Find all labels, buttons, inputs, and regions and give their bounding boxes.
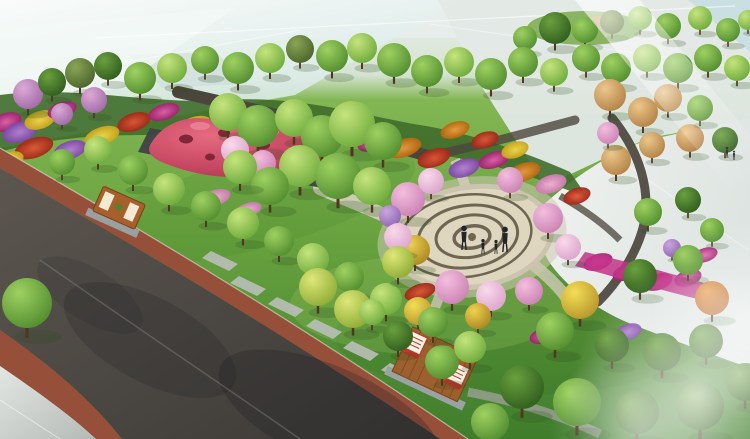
person-head: [494, 240, 497, 243]
tree-canopy-purplePink: [51, 103, 73, 125]
tree-shadow: [263, 74, 292, 82]
tree-canopy-g3: [94, 52, 122, 80]
tree-canopy-g2: [359, 299, 385, 325]
tree-shadow: [56, 126, 77, 132]
tree-canopy-g2: [454, 331, 486, 363]
tree-canopy-g1: [191, 46, 219, 74]
tree-canopy-tan: [639, 132, 665, 158]
tree-shadow: [609, 176, 638, 184]
tree-canopy-lime: [382, 246, 414, 278]
tree-shadow: [547, 45, 577, 54]
tree-canopy-g3: [539, 12, 571, 44]
tree-canopy-g1: [508, 47, 538, 77]
tree-shadow: [722, 43, 745, 50]
tree-shadow: [603, 145, 624, 151]
tree-canopy-pink: [435, 270, 469, 304]
tree-canopy-g3: [383, 321, 413, 351]
tree-canopy-g1: [536, 312, 574, 350]
tree-canopy-g1: [694, 44, 722, 72]
person-body: [502, 233, 507, 244]
tree-shadow: [426, 338, 455, 346]
tree-shadow: [232, 185, 264, 195]
person-leg: [465, 242, 466, 250]
tree-shadow: [602, 112, 632, 121]
tree-canopy-olive: [65, 58, 95, 88]
tree-canopy-g3: [675, 187, 701, 213]
person-body: [481, 243, 484, 249]
tree-shadow: [641, 227, 668, 235]
tree-canopy-g2: [444, 47, 474, 77]
tree-canopy-g1: [316, 40, 348, 72]
tree-canopy-g1: [634, 198, 662, 226]
tree-canopy-purplePink: [81, 87, 107, 113]
tree-canopy-pinkLight: [418, 168, 444, 194]
tree-shadow: [646, 159, 671, 166]
tree-shadow: [562, 261, 587, 268]
person-body: [495, 244, 498, 250]
tree-shadow: [579, 73, 606, 81]
tree-shadow: [511, 411, 553, 423]
tree-canopy-g2: [540, 58, 568, 86]
tree-shadow: [483, 91, 513, 100]
tree-canopy-pinkLight: [555, 234, 581, 260]
tree-shadow: [293, 64, 320, 72]
tree-shadow: [419, 88, 449, 97]
tree-shadow: [547, 87, 574, 95]
tree-canopy-tan: [628, 97, 658, 127]
tree-shadow: [682, 214, 707, 221]
tree-canopy-g3: [38, 68, 66, 96]
person-head: [481, 239, 484, 242]
tree-canopy-pink: [515, 277, 543, 305]
park-rendering-stage: Aerial rendering of a pocket park with c…: [0, 0, 750, 439]
tree-shadow: [199, 222, 228, 230]
tree-shadow: [694, 31, 717, 38]
tree-canopy-g2: [724, 55, 750, 81]
tree-canopy-g2: [255, 43, 285, 73]
person-leg: [462, 242, 463, 250]
tree-shadow: [101, 81, 128, 89]
tree-shadow: [701, 73, 728, 81]
tree-shadow: [503, 194, 528, 201]
person-head: [461, 226, 467, 232]
tree-canopy-g1: [251, 167, 289, 205]
tree-canopy-g1: [2, 278, 52, 328]
tree-canopy-g1: [49, 149, 75, 175]
tree-canopy-g2: [227, 207, 259, 239]
play-structure-highlight: [190, 122, 210, 130]
tree-canopy-g1: [118, 155, 148, 185]
person-leg: [503, 244, 504, 252]
tree-canopy-g1: [264, 226, 294, 256]
tree-canopy-g2: [347, 33, 377, 63]
play-structure-hole: [179, 135, 193, 144]
tree-shadow: [522, 306, 549, 314]
tree-canopy-g2: [688, 6, 712, 30]
tree-canopy-g3: [500, 365, 544, 409]
tree-canopy-g1: [377, 43, 411, 77]
tree-shadow: [425, 195, 450, 202]
tree-canopy-lime: [299, 268, 337, 306]
tree-canopy-g1: [572, 44, 600, 72]
tree-canopy-g2: [84, 136, 112, 164]
tree-canopy-g1: [364, 122, 402, 160]
tree-shadow: [462, 364, 492, 373]
tree-canopy-g1: [222, 52, 254, 84]
tree-canopy-pink: [597, 122, 619, 144]
tree-shadow: [165, 84, 194, 92]
person-leg: [506, 244, 507, 252]
tree-shadow: [21, 110, 50, 118]
tree-shadow: [516, 78, 545, 86]
tree-canopy-g2: [157, 53, 187, 83]
tree-canopy-g2: [153, 173, 185, 205]
tree-canopy-pink: [497, 167, 523, 193]
tree-shadow: [126, 186, 155, 194]
tree-canopy-g1: [334, 262, 364, 292]
tree-shadow: [161, 206, 191, 215]
tree-canopy-yellow2: [465, 303, 491, 329]
tree-canopy-g2: [353, 167, 391, 205]
person-head: [502, 227, 508, 233]
tree-shadow: [15, 330, 63, 344]
tree-canopy-g2: [223, 150, 257, 184]
tree-shadow: [132, 95, 162, 104]
tree-shadow: [56, 176, 81, 183]
park-rendering: [0, 0, 750, 439]
tree-shadow: [230, 85, 260, 94]
tree-shadow: [324, 73, 354, 82]
tree-canopy-olive: [286, 35, 314, 63]
tree-shadow: [91, 165, 118, 173]
tree-canopy-tan: [594, 79, 626, 111]
tree-canopy-g1: [418, 307, 448, 337]
tree-shadow: [272, 257, 301, 265]
tree-shadow: [452, 78, 481, 86]
tree-canopy-g1: [513, 26, 537, 50]
tree-canopy-g1: [716, 18, 740, 42]
tree-canopy-g1: [191, 191, 221, 221]
tree-shadow: [390, 279, 420, 288]
tree-canopy-g1: [475, 58, 507, 90]
tree-canopy-yellow: [561, 281, 599, 319]
tree-shadow: [434, 380, 466, 390]
tree-canopy-g1: [124, 62, 156, 94]
tree-shadow: [235, 240, 265, 249]
tree-shadow: [391, 352, 420, 360]
tree-canopy-g1: [411, 55, 443, 87]
tree-canopy-pink: [533, 203, 563, 233]
play-structure-hole: [205, 154, 215, 161]
tree-shadow: [261, 206, 297, 217]
tree-shadow: [386, 78, 418, 88]
tree-shadow: [198, 75, 225, 83]
tree-canopy-g1: [425, 345, 459, 379]
tree-shadow: [88, 114, 113, 121]
person-body: [461, 232, 466, 242]
